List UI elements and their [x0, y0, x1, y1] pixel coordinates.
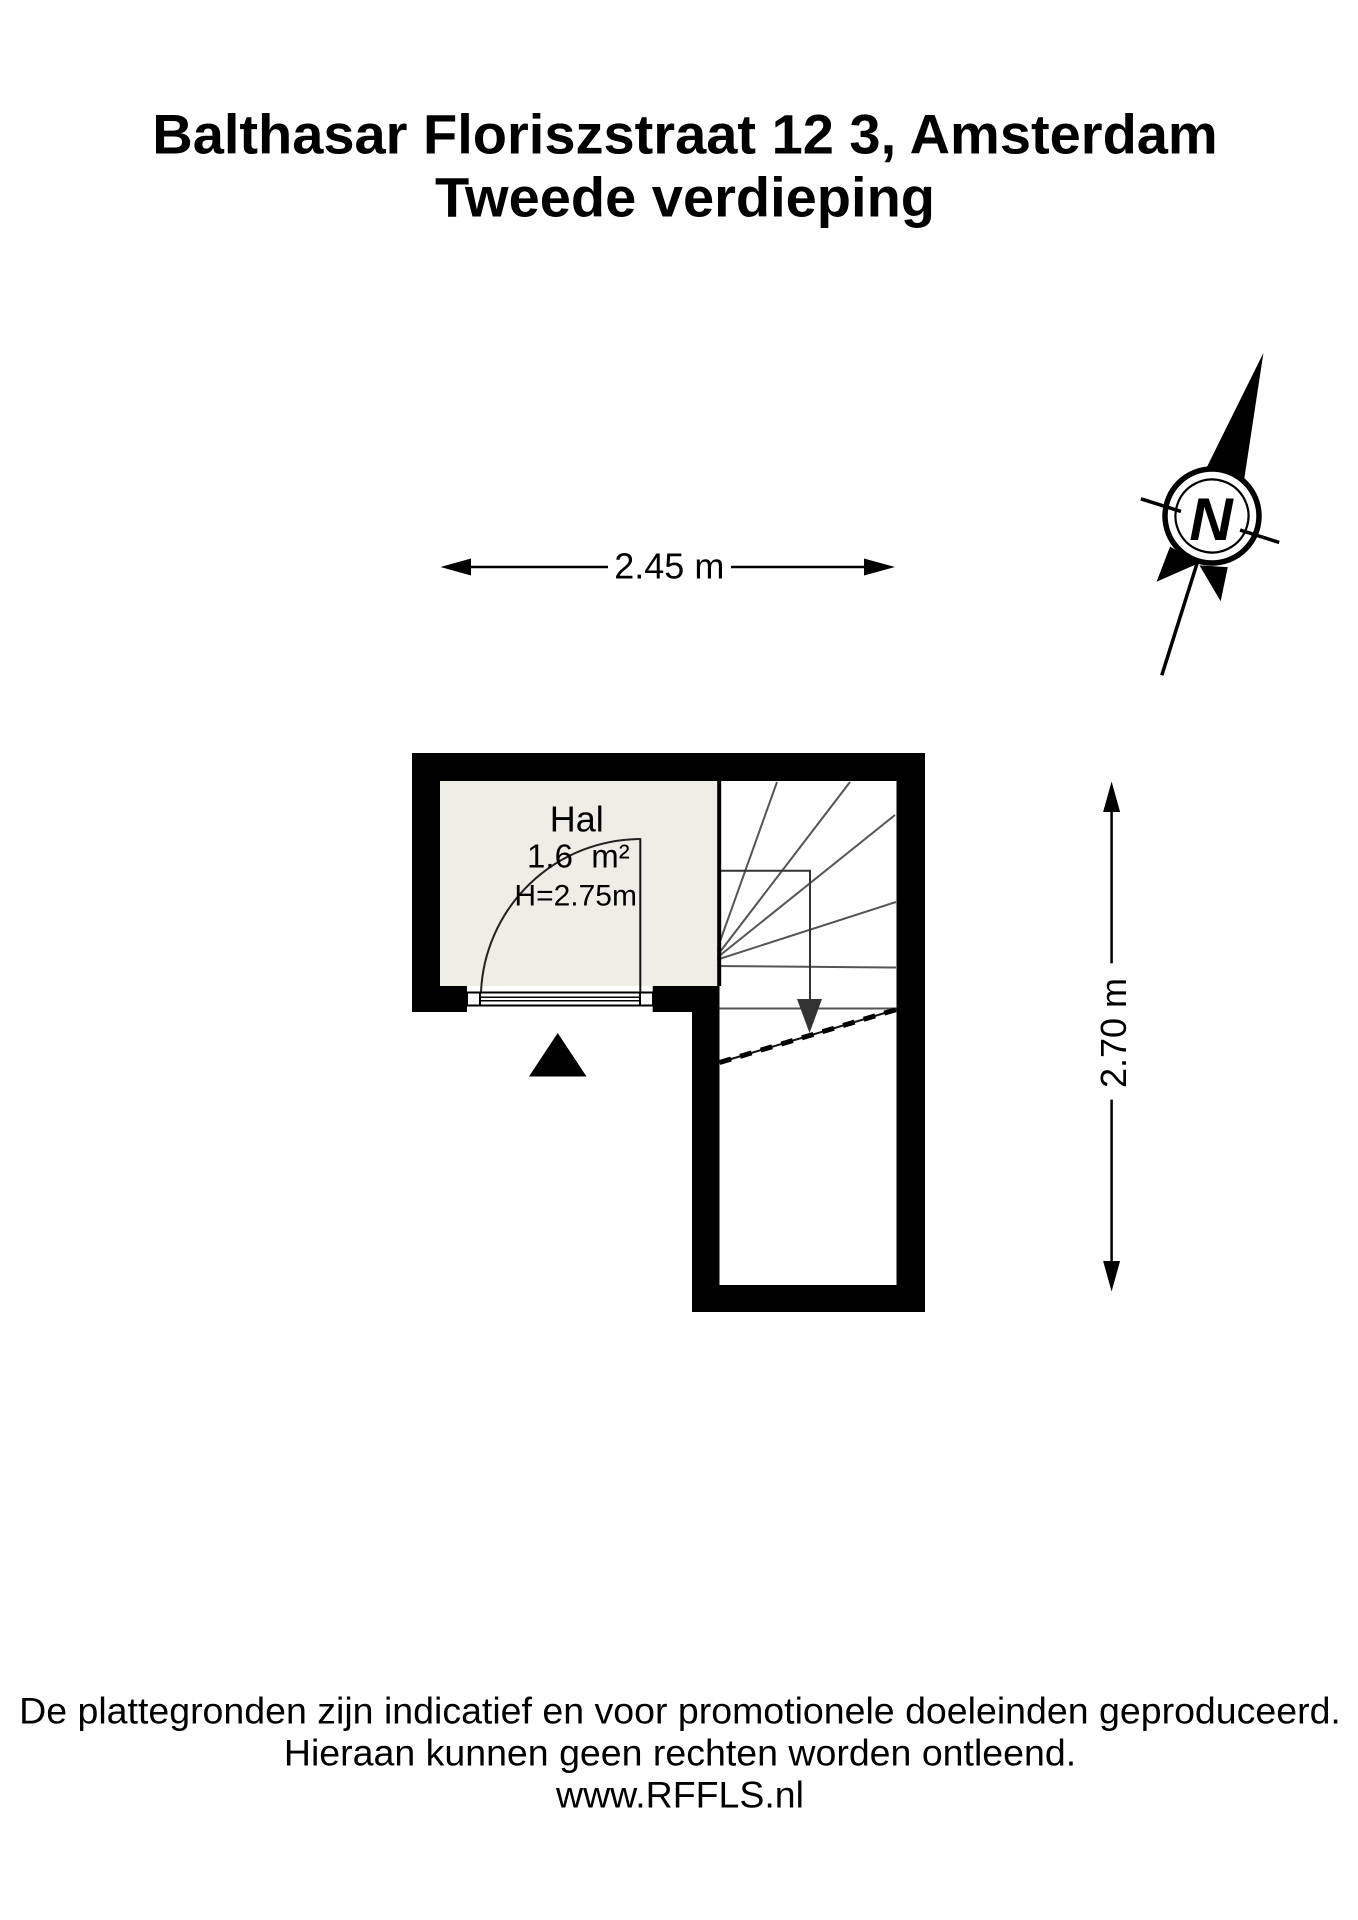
svg-text:2.45 m: 2.45 m — [614, 546, 724, 587]
svg-text:2.70 m: 2.70 m — [1093, 978, 1134, 1088]
svg-text:Balthasar Floriszstraat 12 3,: Balthasar Floriszstraat 12 3, Amsterdam — [152, 103, 1217, 166]
svg-text:Hal: Hal — [550, 798, 604, 839]
svg-text:N: N — [1189, 486, 1234, 553]
svg-text:Tweede verdieping: Tweede verdieping — [435, 166, 935, 229]
svg-text:www.RFFLS.nl: www.RFFLS.nl — [555, 1773, 804, 1815]
svg-text:Hieraan kunnen geen rechten wo: Hieraan kunnen geen rechten worden ontle… — [284, 1731, 1076, 1773]
svg-text:1.6 m²: 1.6 m² — [527, 837, 630, 874]
svg-text:H=2.75m: H=2.75m — [514, 879, 637, 912]
svg-text:De plattegronden zijn indicati: De plattegronden zijn indicatief en voor… — [19, 1689, 1341, 1731]
